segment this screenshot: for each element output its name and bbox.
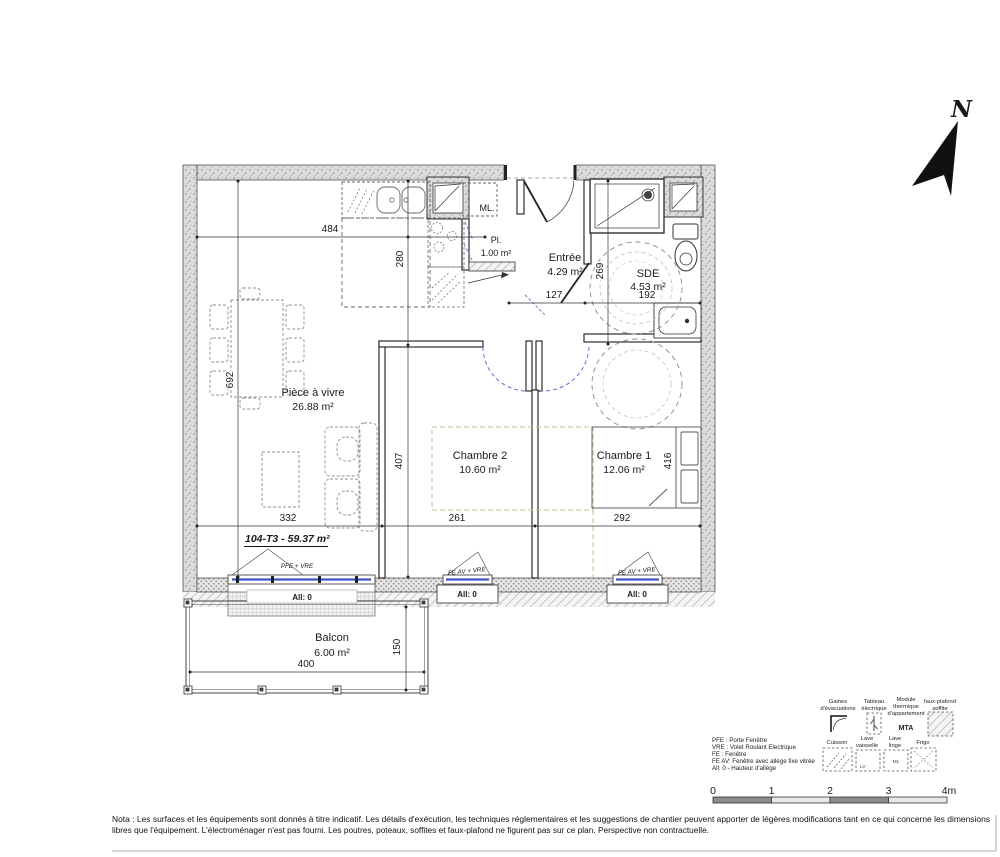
scale-2: 2 bbox=[827, 785, 833, 797]
room-entree-area: 4.29 m² bbox=[547, 266, 583, 278]
legend-cuisson-l1: Cuisson bbox=[827, 740, 848, 746]
scale-0: 0 bbox=[710, 785, 716, 797]
floorplan-drawing: 484 280 692 407 269 332 261 292 416 127 … bbox=[0, 0, 1000, 857]
pfe-label: PFE + VRE bbox=[281, 563, 314, 570]
dim-692: 692 bbox=[225, 371, 236, 388]
dim-150: 150 bbox=[392, 638, 403, 655]
faux-plafond-icon bbox=[928, 712, 953, 736]
legend-lv-l2: vaisselle bbox=[856, 743, 878, 749]
abbr-fe: FE : Fenêtre bbox=[712, 751, 747, 758]
legend-gaines-l1: Gaines bbox=[829, 699, 847, 705]
cuisson-zone bbox=[342, 218, 430, 307]
placard-arrow bbox=[468, 275, 502, 283]
sofa bbox=[325, 423, 377, 531]
scale-3: 3 bbox=[886, 785, 892, 797]
room-balcon-area: 6.00 m² bbox=[314, 647, 350, 659]
dish-rack bbox=[348, 188, 374, 214]
abbr-vre: VRE : Volet Roulant Electrique bbox=[712, 744, 796, 751]
room-sde-name: SDE bbox=[637, 268, 660, 280]
abbr-pfe: PFE : Porte Fenêtre bbox=[712, 737, 768, 744]
unit-title: 104-T3 - 59.37 m² bbox=[245, 533, 330, 545]
sink-bowl-left bbox=[377, 187, 400, 213]
abbr-feav: FE AV: Fenêtre avec allège fixe vitrée bbox=[712, 758, 815, 765]
chambre1-door-swing bbox=[541, 347, 589, 391]
room-placard-name: Pl. bbox=[491, 235, 502, 245]
coffee-table bbox=[262, 452, 299, 507]
nota-line1: Nota : Les surfaces et les équipements s… bbox=[112, 815, 990, 824]
kitchen-equipment bbox=[342, 182, 497, 307]
chambre2-door-swing bbox=[483, 347, 527, 391]
sink-bowl-right bbox=[402, 187, 425, 213]
legend-module-l3: d'appartement bbox=[888, 711, 925, 717]
legend-module-l1: Module bbox=[896, 697, 915, 703]
dim-292: 292 bbox=[614, 513, 631, 524]
dim-269: 269 bbox=[595, 262, 606, 279]
room-living-area: 26.88 m² bbox=[292, 401, 334, 413]
scale-bar: 0 1 2 3 4m bbox=[710, 785, 956, 803]
legend-ml-l2: linge bbox=[889, 743, 901, 749]
abbr-allege: All: 0 - Hauteur d'allège bbox=[712, 765, 777, 772]
dim-127: 127 bbox=[546, 290, 563, 301]
dim-332: 332 bbox=[280, 513, 297, 524]
scale-1: 1 bbox=[769, 785, 775, 797]
legend-module-l2: thermique bbox=[893, 704, 919, 710]
washing-machine-label: ML. bbox=[479, 203, 494, 213]
nota-block: Nota : Les surfaces et les équipements s… bbox=[112, 815, 996, 851]
allege-label-fe2: All: 0 bbox=[627, 590, 647, 599]
dim-416: 416 bbox=[663, 452, 674, 469]
legend-tableau-l2: électrique bbox=[861, 706, 886, 712]
module-thermique-icon: MTA bbox=[899, 725, 914, 732]
allege-label-fe1: All: 0 bbox=[457, 590, 477, 599]
north-arrow: N bbox=[912, 96, 973, 196]
door-leaf-chambre2 bbox=[526, 341, 532, 391]
lv-mark: LV bbox=[860, 764, 866, 770]
room-living-name: Pièce à vivre bbox=[282, 387, 345, 399]
entrance-door-swing bbox=[547, 181, 574, 222]
floorplan-sheet: 484 280 692 407 269 332 261 292 416 127 … bbox=[0, 0, 1000, 857]
room-balcon-name: Balcon bbox=[315, 632, 349, 644]
nota-line2: libres que l'équipement. L'électroménage… bbox=[112, 826, 709, 835]
dim-280: 280 bbox=[395, 250, 406, 267]
dim-400: 400 bbox=[298, 659, 315, 670]
room-chambre2-area: 10.60 m² bbox=[459, 464, 501, 476]
legend-tableau-l1: Tableau bbox=[864, 699, 884, 705]
legend-frigo-l1: Frigo bbox=[916, 740, 929, 746]
ml-mark: ML bbox=[893, 759, 900, 765]
room-chambre1-name: Chambre 1 bbox=[597, 450, 651, 462]
wc-tank bbox=[673, 224, 698, 239]
room-placard-area: 1.00 m² bbox=[481, 248, 512, 258]
window-swing-symbols bbox=[232, 549, 660, 575]
furniture bbox=[210, 288, 701, 531]
legend-icons: Gaines d'évacuations Tableau électrique … bbox=[820, 697, 956, 771]
room-chambre1-area: 12.06 m² bbox=[603, 464, 645, 476]
interior-walls bbox=[379, 180, 701, 578]
scale-4m: 4m bbox=[942, 785, 957, 797]
entrance-door-leaf bbox=[524, 181, 547, 222]
legend-fauxplafond-l1: faux-plafond bbox=[924, 699, 956, 705]
room-chambre2-name: Chambre 2 bbox=[453, 450, 507, 462]
room-sde-area: 4.53 m² bbox=[630, 281, 666, 293]
north-needle-icon bbox=[912, 121, 958, 196]
dim-261: 261 bbox=[449, 513, 466, 524]
tableau-electrique-icon bbox=[867, 713, 881, 734]
allege-label-pfe: All: 0 bbox=[292, 593, 312, 602]
placard-sill bbox=[469, 262, 515, 271]
legend-abbreviations: PFE : Porte Fenêtre VRE : Volet Roulant … bbox=[712, 737, 815, 772]
dim-407: 407 bbox=[394, 452, 405, 469]
legend-fauxplafond-l2: soffite bbox=[932, 706, 947, 712]
room-entree-name: Entrée bbox=[549, 252, 581, 264]
legend-gaines-l2: d'évacuations bbox=[820, 706, 855, 712]
door-leaf-chambre1 bbox=[536, 341, 542, 391]
north-label: N bbox=[950, 96, 973, 123]
legend-ml-l1: Lave bbox=[889, 736, 902, 742]
dim-484: 484 bbox=[322, 224, 339, 235]
hob-zone bbox=[428, 218, 464, 267]
wc-bowl bbox=[675, 241, 697, 271]
cuisson-icon bbox=[823, 748, 852, 771]
legend-lv-l1: Lave bbox=[861, 736, 874, 742]
